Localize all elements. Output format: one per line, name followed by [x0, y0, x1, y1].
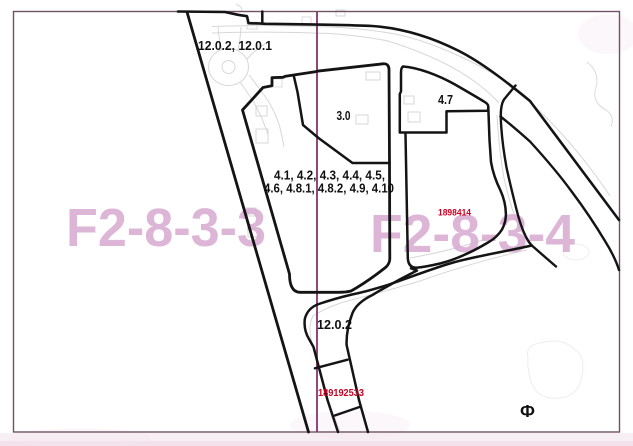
- svg-text:F2-8-3-3: F2-8-3-3: [66, 198, 266, 258]
- svg-text:4.6, 4.8.1, 4.8.2, 4.9, 4.10: 4.6, 4.8.1, 4.8.2, 4.9, 4.10: [264, 182, 394, 196]
- svg-text:3.0: 3.0: [337, 108, 351, 123]
- svg-text:12.0.2, 12.0.1: 12.0.2, 12.0.1: [198, 38, 272, 53]
- svg-text:Ф: Ф: [520, 401, 535, 421]
- svg-text:189192533: 189192533: [318, 388, 364, 399]
- svg-text:1898414: 1898414: [438, 208, 472, 219]
- svg-text:12.0.2: 12.0.2: [317, 318, 352, 332]
- svg-text:4.1, 4.2, 4.3, 4.4, 4.5,: 4.1, 4.2, 4.3, 4.4, 4.5,: [274, 169, 385, 183]
- svg-text:4.7: 4.7: [438, 92, 453, 107]
